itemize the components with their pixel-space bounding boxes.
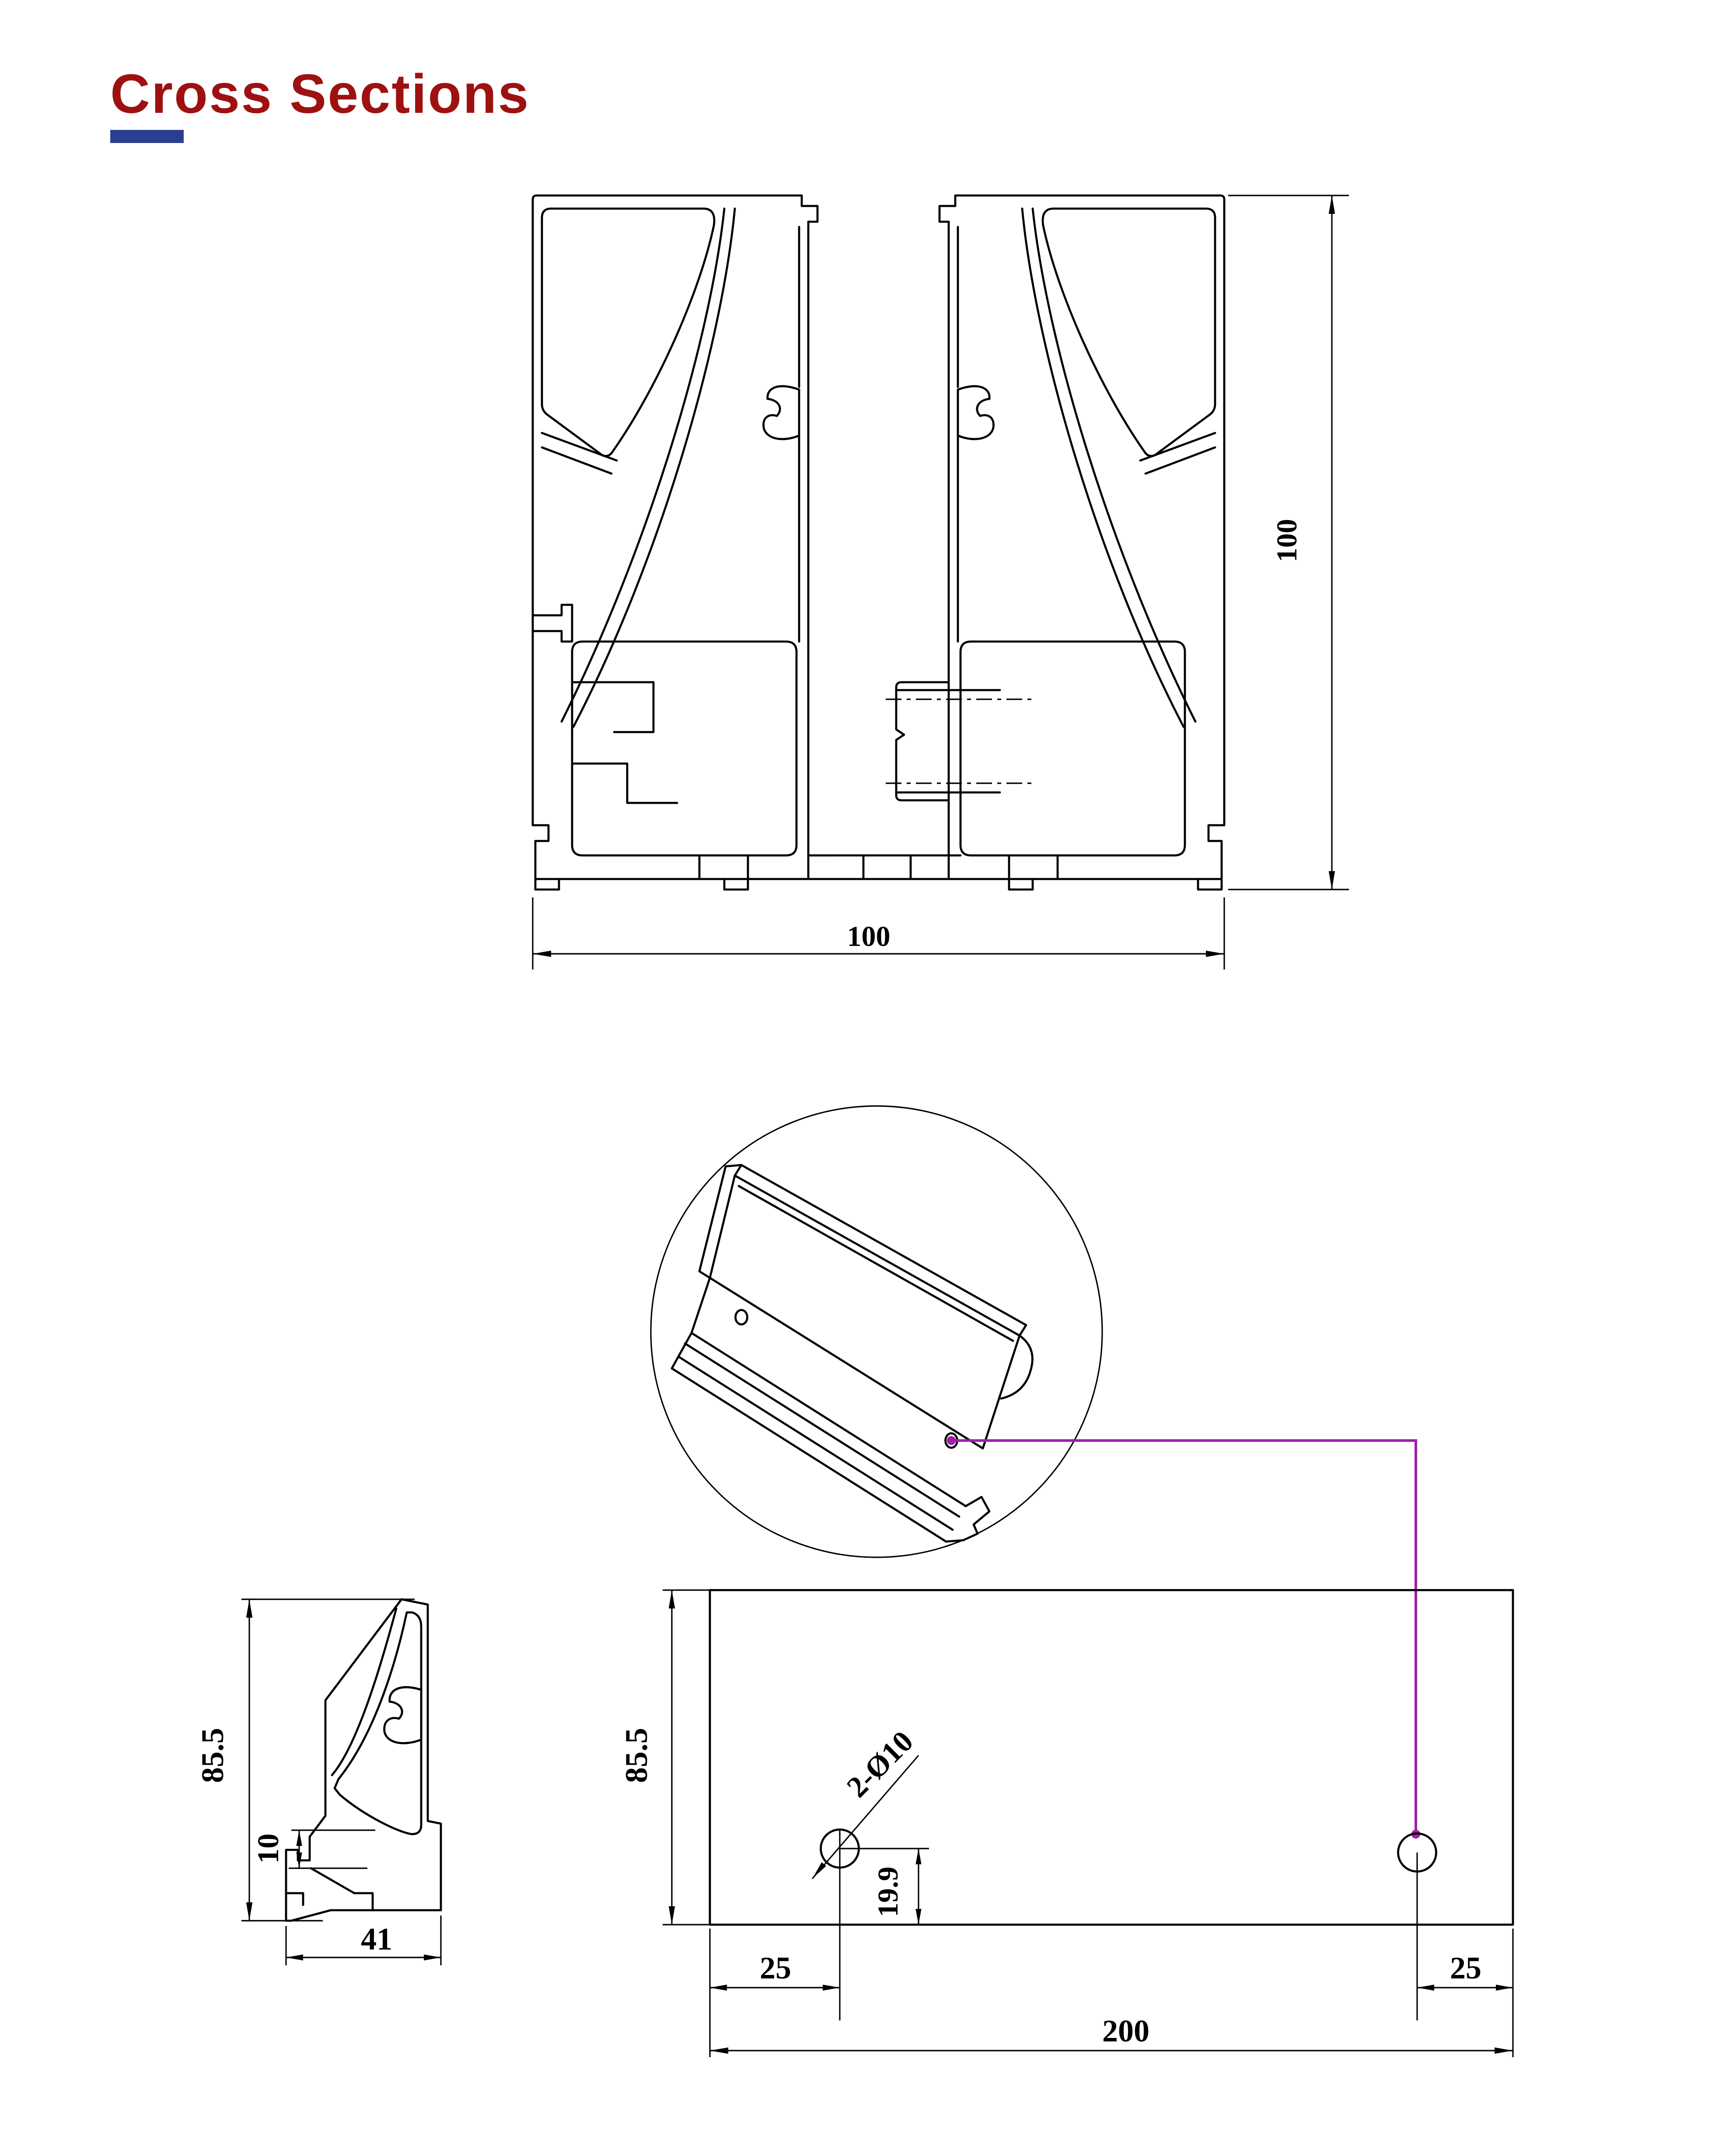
dim-plate-height: 85.5 (619, 1728, 654, 1783)
isometric-sill-bar (672, 1165, 1032, 1542)
dim-assembly-height: 100 (1271, 519, 1303, 562)
dim-adapter-width: 41 (361, 1922, 392, 1957)
detail-leader-line (947, 1436, 1420, 1839)
adapter-cross-section-drawing: 85.5 10 41 (195, 1599, 441, 1965)
plate-height-dimension: 85.5 (619, 1590, 715, 1925)
dim-plate-hole-offset: 19.9 (872, 1866, 904, 1917)
left-profile-outline (533, 195, 817, 890)
dim-plate-left-margin: 25 (760, 1950, 791, 1985)
assembly-width-dimension: 100 (533, 897, 1224, 970)
right-profile-outline (940, 195, 1224, 890)
plate-right-margin-dimension: 25 (1417, 1929, 1513, 2057)
dim-adapter-height: 85.5 (195, 1728, 230, 1783)
title-underline (110, 130, 184, 143)
c-clip-notch-icon (764, 386, 799, 439)
plate-hole-offset-dimension: 19.9 (872, 1849, 922, 1925)
dim-assembly-width: 100 (847, 921, 891, 952)
plate-width-dimension: 200 (710, 2013, 1513, 2054)
detail-hole-left (736, 1310, 747, 1325)
adapter-width-dimension: 41 (286, 1915, 441, 1965)
plate-left-margin-dimension: 25 (710, 1929, 840, 2057)
dim-plate-right-margin: 25 (1450, 1950, 1481, 1985)
cross-sections-drawing: Cross Sections (0, 0, 1736, 2149)
dim-plate-hole-callout: 2-Ø10 (840, 1724, 919, 1804)
adapter-height-dimension: 85.5 (195, 1599, 415, 1921)
detail-circle (651, 1106, 1102, 1557)
assembly-height-dimension: 100 (1228, 195, 1349, 890)
mounting-plate-drawing: 85.5 2-Ø10 19.9 25 25 (619, 1590, 1513, 2057)
adapter-c-clip-icon (384, 1687, 421, 1743)
assembly-cross-section-drawing: 100 100 (533, 195, 1349, 970)
document-page: Cross Sections (0, 0, 1736, 2149)
adapter-step-dimension: 10 (251, 1830, 375, 1868)
page-title: Cross Sections (110, 63, 530, 125)
dim-adapter-step: 10 (251, 1834, 285, 1864)
isometric-detail-view (651, 1106, 1102, 1557)
center-interlock (808, 682, 1037, 879)
plate-hole-callout: 2-Ø10 (812, 1724, 919, 1879)
dim-plate-width: 200 (1102, 2013, 1149, 2048)
plate-outline (710, 1590, 1513, 1925)
